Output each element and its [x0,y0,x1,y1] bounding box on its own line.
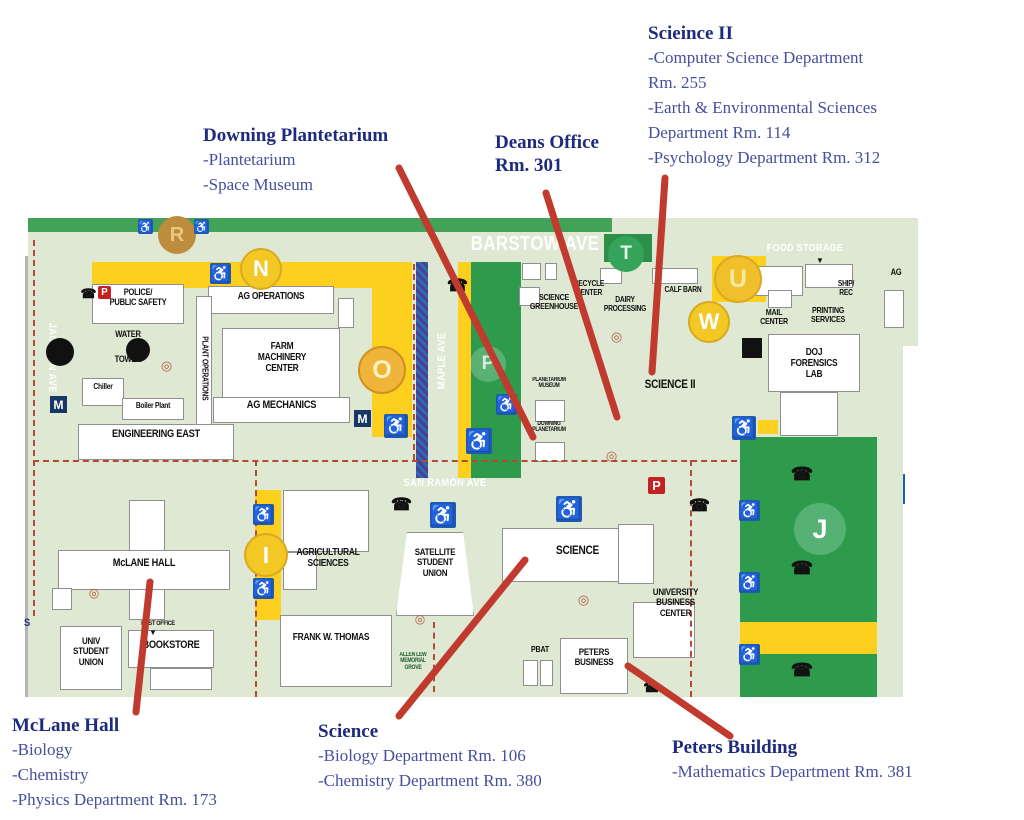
callout-line: -Psychology Department Rm. 312 [648,145,978,170]
label-ag-operations: AG OPERATIONS [218,292,324,303]
building [540,660,553,686]
lot-circle-t: T [608,236,644,272]
label-frank-w-thomas: FRANK W. THOMAS [278,633,384,644]
accessibility-icon: ♿ [194,219,209,234]
callout-line: -Earth & Environmental Sciences [648,95,978,120]
target-icon: ◎ [160,359,173,372]
lot-circle-u: U [714,255,762,303]
accessibility-icon: ♿ [430,502,456,528]
target-icon: ◎ [414,613,426,625]
hatched-strip [416,262,428,478]
parking-sign-icon: P [648,477,665,494]
building [52,588,72,610]
phone-icon: ☎ [691,497,708,514]
callout-line: Department Rm. 114 [648,120,978,145]
phone-icon: ☎ [793,661,811,679]
callout-peters: Peters Building-Mathematics Department R… [672,736,1002,784]
label-science-ii: SCIENCE II [636,378,703,391]
dashed-boundary [433,622,435,692]
callout-title: Downing Plantetarium [203,124,473,147]
map-background [903,218,918,346]
label-peters-business: PETERS BUSINESS [565,648,622,669]
building [545,263,557,280]
label-calf-barn: CALF BARN [659,286,708,295]
building [522,263,541,280]
callout-deans: Deans Office Rm. 301 [495,131,645,177]
accessibility-icon: ♿ [739,572,760,593]
accessibility-icon: ♿ [739,500,760,521]
target-icon: ◎ [610,330,623,343]
label-science-building: SCIENCE [546,544,609,557]
accessibility-icon: ♿ [384,414,408,438]
building [768,290,792,308]
callout-line: -Biology Department Rm. 106 [318,743,618,768]
label-ag-clipped: AG [886,268,906,278]
accessibility-icon: ♿ [253,504,274,525]
dashed-boundary [33,460,737,462]
accessibility-icon: ♿ [253,578,274,599]
label-university-business-center: UNIVERSITY BUSINESS CENTER [644,588,707,619]
map-zone [758,420,778,434]
label-s-edge: S [21,618,33,630]
label-chiller: Chiller [85,383,120,392]
phone-icon: ☎ [393,496,410,513]
phone-icon: ☎ [793,465,811,483]
accessibility-icon: ♿ [210,263,231,284]
label-water: WATER [104,330,151,340]
building [535,442,565,462]
callout-line: -Biology [12,737,312,762]
accessibility-icon: ♿ [496,394,517,415]
building [884,290,904,328]
building [283,490,369,552]
accessibility-icon: ♿ [466,428,492,454]
callout-title: Science [318,720,618,743]
target-icon: ◎ [605,449,618,462]
phone-icon: ☎ [449,277,466,294]
target-icon: ◎ [577,593,590,606]
dashed-boundary [413,264,415,460]
dashed-boundary [33,240,35,616]
map-edge [25,256,28,697]
callout-line: -Plantetarium [203,147,473,172]
label-ag-mechanics: AG MECHANICS [224,400,339,412]
callout-line: -Mathematics Department Rm. 381 [672,759,1002,784]
callout-line: -Chemistry [12,762,312,787]
label-dairy-processing: DAIRY PROCESSING [601,296,650,313]
label-satellite-student-union: SATELLITE STUDENT UNION [406,548,465,579]
callout-title: McLane Hall [12,714,312,737]
label-barstow-ave: BARSTOW AVE [468,234,602,256]
building [535,400,565,422]
callout-science2: Scieince II-Computer Science DepartmentR… [648,22,978,170]
label-ship-rec: SHIP/ REC [829,280,863,297]
label-plant-operations: PLANT OPERATIONS [200,314,209,423]
label-food-storage: FOOD STORAGE [763,243,847,254]
label-doj-forensics-lab: DOJ FORENSICS LAB [777,348,851,380]
arrow-down-icon: ▼ [149,628,157,636]
callout-line: -Chemistry Department Rm. 380 [318,768,618,793]
phone-icon: ☎ [793,559,811,577]
target-icon: ◎ [88,587,100,599]
callout-line: Rm. 255 [648,70,978,95]
phone-icon: ☎ [645,680,659,694]
building [150,668,212,690]
label-post-office: POST OFFICE [133,620,183,627]
callout-line: -Space Museum [203,172,473,197]
callout-title: Scieince II [648,22,978,45]
label-san-ramon-ave: SAN RAMON AVE [399,478,491,490]
parking-p-faint: P [470,346,506,382]
label-allen-lew-memorial-grove: ALLEN LEW MEMORIAL GROVE [394,652,433,671]
label-mclane-hall: McLANE HALL [72,558,216,570]
accessibility-icon: ♿ [138,219,153,234]
label-engineering-east: ENGINEERING EAST [90,429,221,441]
callout-title: Deans Office Rm. 301 [495,131,645,177]
building [523,660,538,686]
metro-icon: M [50,396,67,413]
accessibility-icon: ♿ [556,496,582,522]
building [58,550,230,590]
lot-circle-o: O [358,346,406,394]
phone-icon: ☎ [82,287,95,300]
label-recycle-center: RECYCLE CENTER [563,280,615,297]
building [780,392,838,436]
callout-mclane: McLane Hall-Biology-Chemistry-Physics De… [12,714,312,812]
label-agricultural-sciences: AGRICULTURAL SCIENCES [290,548,366,570]
callout-line: -Computer Science Department [648,45,978,70]
label-boiler-plant: Boiler Plant [127,402,179,411]
building [618,524,654,584]
building [280,615,392,687]
label-maple-ave: MAPLE AVE [437,311,449,412]
label-pbat: PBAT [523,645,557,654]
parking-sign-icon: P [98,286,111,299]
callout-title: Peters Building [672,736,1002,759]
label-univ-student-union: UNIV STUDENT UNION [65,637,117,668]
callout-downing: Downing Plantetarium-Plantetarium-Space … [203,124,473,197]
accessibility-icon: ♿ [732,416,756,440]
black-square [742,338,762,358]
map-zone [740,622,877,654]
label-planetarium-museum: PLANETARIUM MUSEUM [523,377,575,390]
black-dot [46,338,74,366]
label-downing-planetarium: DOWNING PLANETARIUM [523,421,575,434]
metro-icon: M [354,410,371,427]
lot-circle-r: R [158,216,196,254]
arrow-down-icon: ▼ [816,256,824,264]
building [652,268,698,284]
lot-circle-w: W [688,301,730,343]
map-zone [28,218,612,232]
label-bookstore: BOOKSTORE [135,640,207,652]
label-mail-center: MAIL CENTER [756,308,793,326]
accessibility-icon: ♿ [739,644,760,665]
lot-circle-n: N [240,248,282,290]
building [338,298,354,328]
label-printing-services: PRINTING SERVICES [804,306,851,324]
lot-circle-i: I [244,533,288,577]
black-dot [126,338,150,362]
callout-science: Science-Biology Department Rm. 106-Chemi… [318,720,618,793]
callout-line: -Physics Department Rm. 173 [12,787,312,812]
label-farm-machinery-center: FARM MACHINERY CENTER [235,342,329,374]
lot-circle-j: J [794,503,846,555]
